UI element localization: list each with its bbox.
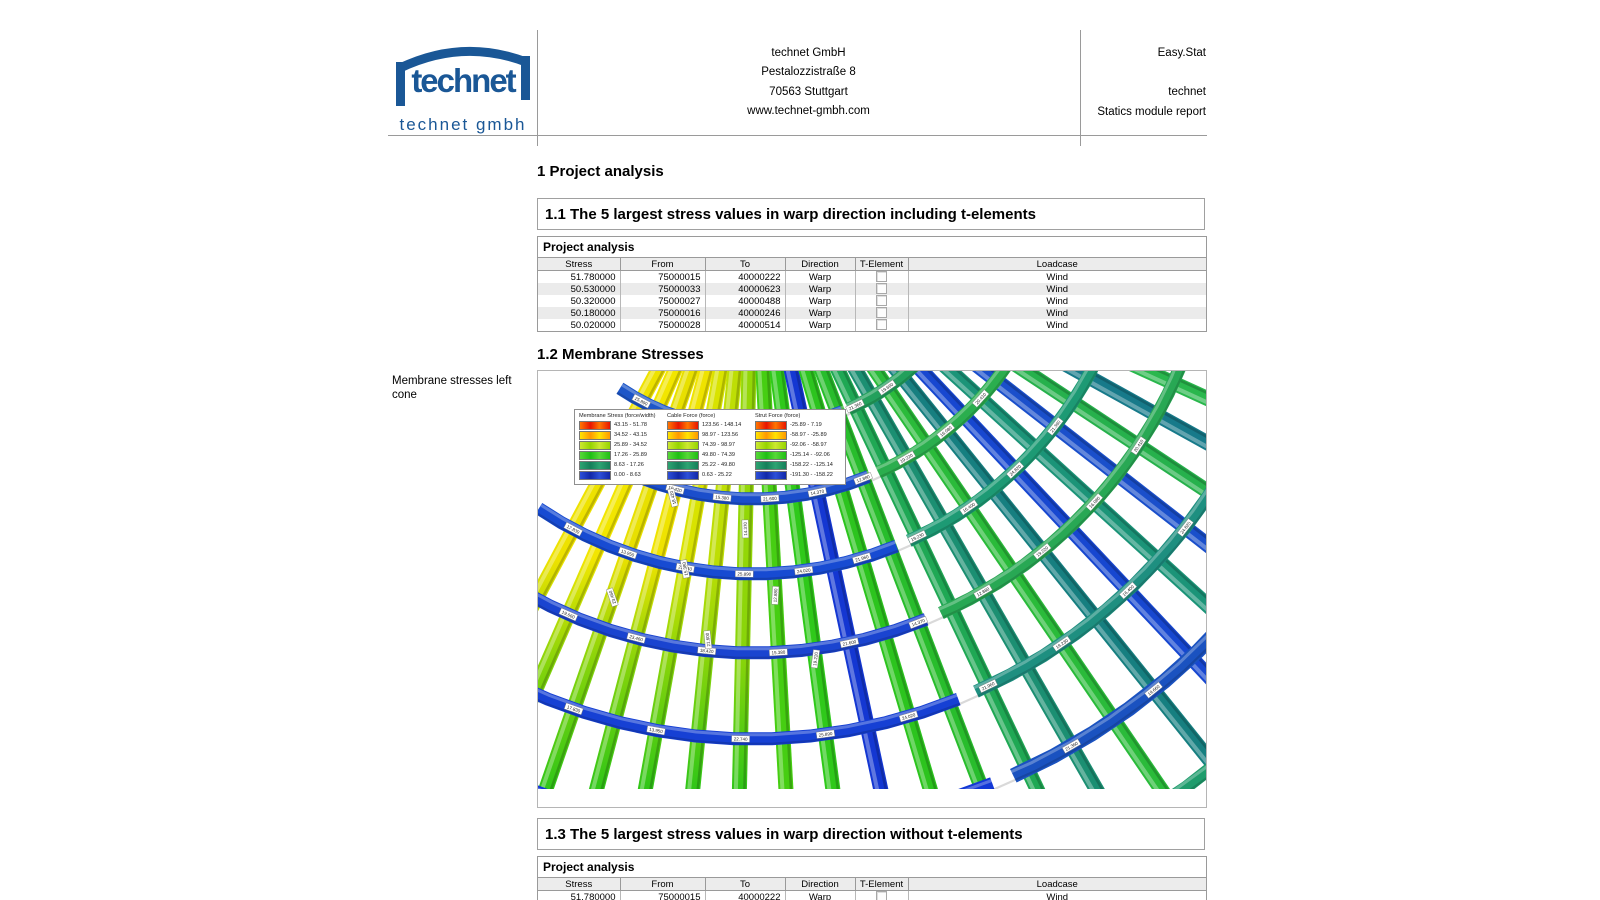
legend-range: -125.14 - -92.06 [790,452,830,458]
legend-row: 0.63 - 25.22 [667,470,755,480]
table-row: 50.5300007500003340000623WarpWind [538,283,1206,295]
legend-group: Strut Force (force)-25.89 - 7.19-58.97 -… [755,413,843,482]
column-header: Stress [538,258,620,271]
cell: 75000015 [620,271,705,284]
legend-range: 74.39 - 98.97 [702,442,735,448]
cell: 75000015 [620,891,705,900]
legend-row: -58.97 - -25.89 [755,430,843,440]
column-header: Direction [785,258,855,271]
company-address: technet GmbH Pestalozzistraße 8 70563 St… [537,44,1080,121]
column-header: From [620,258,705,271]
cell [855,319,908,331]
company-name: technet GmbH [537,44,1080,63]
legend-swatch [667,451,699,460]
cell: 40000222 [705,891,785,900]
report-page: technet technet gmbh technet GmbH Pestal… [0,0,1600,900]
cell: 40000623 [705,283,785,295]
legend-range: 0.00 - 8.63 [614,472,641,478]
svg-text:22.740: 22.740 [734,736,748,741]
legend-swatch [579,461,611,470]
t-element-checkbox[interactable] [876,271,887,282]
legend-row: 49.80 - 74.39 [667,450,755,460]
t-element-checkbox[interactable] [876,295,887,306]
legend-range: 34.52 - 43.15 [614,432,647,438]
report-meta: Easy.Stat technet Statics module report [1076,44,1206,122]
legend-swatch [755,441,787,450]
legend-range: -25.89 - 7.19 [790,422,822,428]
legend-row: 8.63 - 17.26 [579,460,667,470]
table-row: 50.3200007500002740000488WarpWind [538,295,1206,307]
cell: 50.180000 [538,307,620,319]
legend-swatch [579,451,611,460]
legend-row: 25.89 - 34.52 [579,440,667,450]
legend-range: 0.63 - 25.22 [702,472,732,478]
legend-range: 49.80 - 74.39 [702,452,735,458]
legend-row: -125.14 - -92.06 [755,450,843,460]
column-header: To [705,878,785,891]
legend-range: 8.63 - 17.26 [614,462,644,468]
table-row: 50.0200007500002840000514WarpWind [538,319,1206,331]
legend-swatch [667,431,699,440]
logo-wordmark: technet [411,62,516,99]
legend-swatch [579,431,611,440]
legend-swatch [755,421,787,430]
column-header: Direction [785,878,855,891]
cell [855,283,908,295]
legend-swatch [579,471,611,480]
legend-row: 123.56 - 148.14 [667,420,755,430]
column-header: To [705,258,785,271]
report-title: Statics module report [1076,103,1206,122]
section-1-1-title: 1.1 The 5 largest stress values in warp … [537,198,1205,230]
table-1-1: Project analysis StressFromToDirectionT-… [537,236,1207,332]
t-element-checkbox[interactable] [876,307,887,318]
vendor-name: technet [1076,83,1206,102]
column-header: Loadcase [908,258,1206,271]
t-element-checkbox[interactable] [876,891,887,900]
section-1-title: 1 Project analysis [537,163,664,180]
legend-swatch [667,471,699,480]
cell: 51.780000 [538,891,620,900]
legend-range: 25.22 - 49.80 [702,462,735,468]
legend-swatch [667,461,699,470]
legend-swatch [667,421,699,430]
cell: 40000488 [705,295,785,307]
cell: Wind [908,271,1206,284]
cell: 40000222 [705,271,785,284]
legend-swatch [579,441,611,450]
t-element-checkbox[interactable] [876,283,887,294]
svg-text:15.380: 15.380 [771,650,786,656]
cell: 75000028 [620,319,705,331]
table-row: 51.7800007500001540000222WarpWind [538,891,1206,900]
legend-swatch [755,461,787,470]
legend-row: -92.06 - -58.97 [755,440,843,450]
section-1-2-title: 1.2 Membrane Stresses [537,346,704,363]
table-1-3: Project analysis StressFromToDirectionT-… [537,856,1207,900]
svg-text:12.880: 12.880 [773,588,779,603]
column-header: From [620,878,705,891]
legend-range: -191.30 - -158.22 [790,472,833,478]
figure-caption: Membrane stresses left cone [392,374,530,402]
figure-legend: Membrane Stress (force/width)43.15 - 51.… [574,409,846,485]
legend-row: 17.26 - 25.89 [579,450,667,460]
legend-range: 98.97 - 123.56 [702,432,738,438]
cell: Warp [785,319,855,331]
membrane-figure: 25.89024.02021.96019.23016.40024.82021.3… [537,370,1207,808]
legend-range: 17.26 - 25.89 [614,452,647,458]
company-city: 70563 Stuttgart [537,83,1080,102]
legend-row: -25.89 - 7.19 [755,420,843,430]
cell: Wind [908,307,1206,319]
legend-swatch [755,451,787,460]
cell: Wind [908,283,1206,295]
logo-subtitle: technet gmbh [390,115,536,135]
company-logo: technet technet gmbh [390,34,536,135]
cell: Warp [785,271,855,284]
legend-row: 98.97 - 123.56 [667,430,755,440]
legend-row: 34.52 - 43.15 [579,430,667,440]
svg-text:14.370: 14.370 [743,521,748,535]
legend-range: 25.89 - 34.52 [614,442,647,448]
table-row: 50.1800007500001640000246WarpWind [538,307,1206,319]
legend-swatch [755,471,787,480]
t-element-checkbox[interactable] [876,319,887,330]
legend-row: -191.30 - -158.22 [755,470,843,480]
cell: 40000246 [705,307,785,319]
company-street: Pestalozzistraße 8 [537,63,1080,82]
legend-row: 43.15 - 51.78 [579,420,667,430]
table-label: Project analysis [538,857,1206,878]
stress-table: StressFromToDirectionT-ElementLoadcase51… [538,878,1206,900]
cell: Warp [785,891,855,900]
company-website: www.technet-gmbh.com [537,102,1080,121]
technet-logo-icon: technet [390,34,536,108]
legend-title: Membrane Stress (force/width) [579,413,667,419]
column-header: T-Element [855,878,908,891]
legend-range: 123.56 - 148.14 [702,422,741,428]
header-rule [388,135,1207,136]
column-header: T-Element [855,258,908,271]
legend-row: -158.22 - -125.14 [755,460,843,470]
cell: Wind [908,891,1206,900]
product-name: Easy.Stat [1076,44,1206,63]
svg-text:25.890: 25.890 [737,571,751,576]
cell [855,295,908,307]
column-header: Loadcase [908,878,1206,891]
legend-range: -92.06 - -58.97 [790,442,827,448]
cell: Warp [785,283,855,295]
table-label: Project analysis [538,237,1206,258]
cell [855,891,908,900]
legend-swatch [579,421,611,430]
cell: 50.320000 [538,295,620,307]
legend-swatch [755,431,787,440]
svg-text:21.600: 21.600 [763,496,778,502]
legend-group: Membrane Stress (force/width)43.15 - 51.… [579,413,667,482]
cell: 75000033 [620,283,705,295]
legend-range: 43.15 - 51.78 [614,422,647,428]
stress-table: StressFromToDirectionT-ElementLoadcase51… [538,258,1206,331]
legend-row: 25.22 - 49.80 [667,460,755,470]
legend-row: 0.00 - 8.63 [579,470,667,480]
cell: 50.530000 [538,283,620,295]
legend-swatch [667,441,699,450]
cell [855,271,908,284]
cell: 40000514 [705,319,785,331]
section-1-3-title: 1.3 The 5 largest stress values in warp … [537,818,1205,850]
legend-title: Strut Force (force) [755,413,843,419]
column-header: Stress [538,878,620,891]
legend-group: Cable Force (force)123.56 - 148.1498.97 … [667,413,755,482]
cell [855,307,908,319]
legend-title: Cable Force (force) [667,413,755,419]
cell: 51.780000 [538,271,620,284]
table-row: 51.7800007500001540000222WarpWind [538,271,1206,284]
cell: 50.020000 [538,319,620,331]
cell: Wind [908,319,1206,331]
legend-row: 74.39 - 98.97 [667,440,755,450]
cell: 75000027 [620,295,705,307]
legend-range: -58.97 - -25.89 [790,432,827,438]
cell: 75000016 [620,307,705,319]
cell: Warp [785,295,855,307]
cell: Wind [908,295,1206,307]
legend-range: -158.22 - -125.14 [790,462,833,468]
cell: Warp [785,307,855,319]
